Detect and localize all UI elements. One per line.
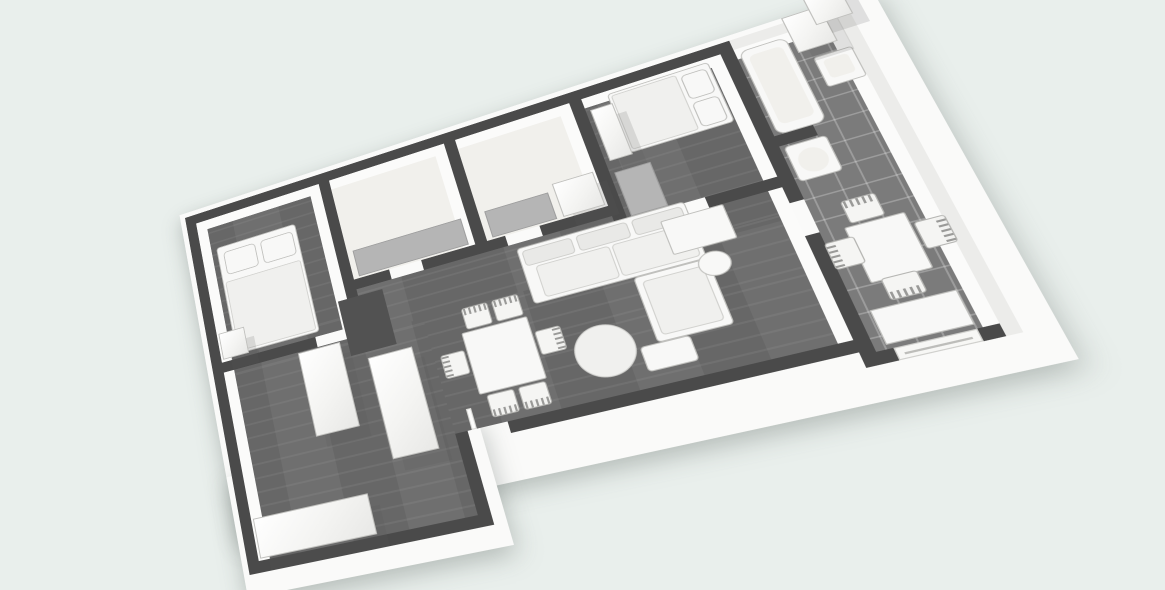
floorplan-3d-canvas[interactable] (0, 0, 1165, 590)
apartment-3d-model[interactable] (185, 0, 1106, 590)
